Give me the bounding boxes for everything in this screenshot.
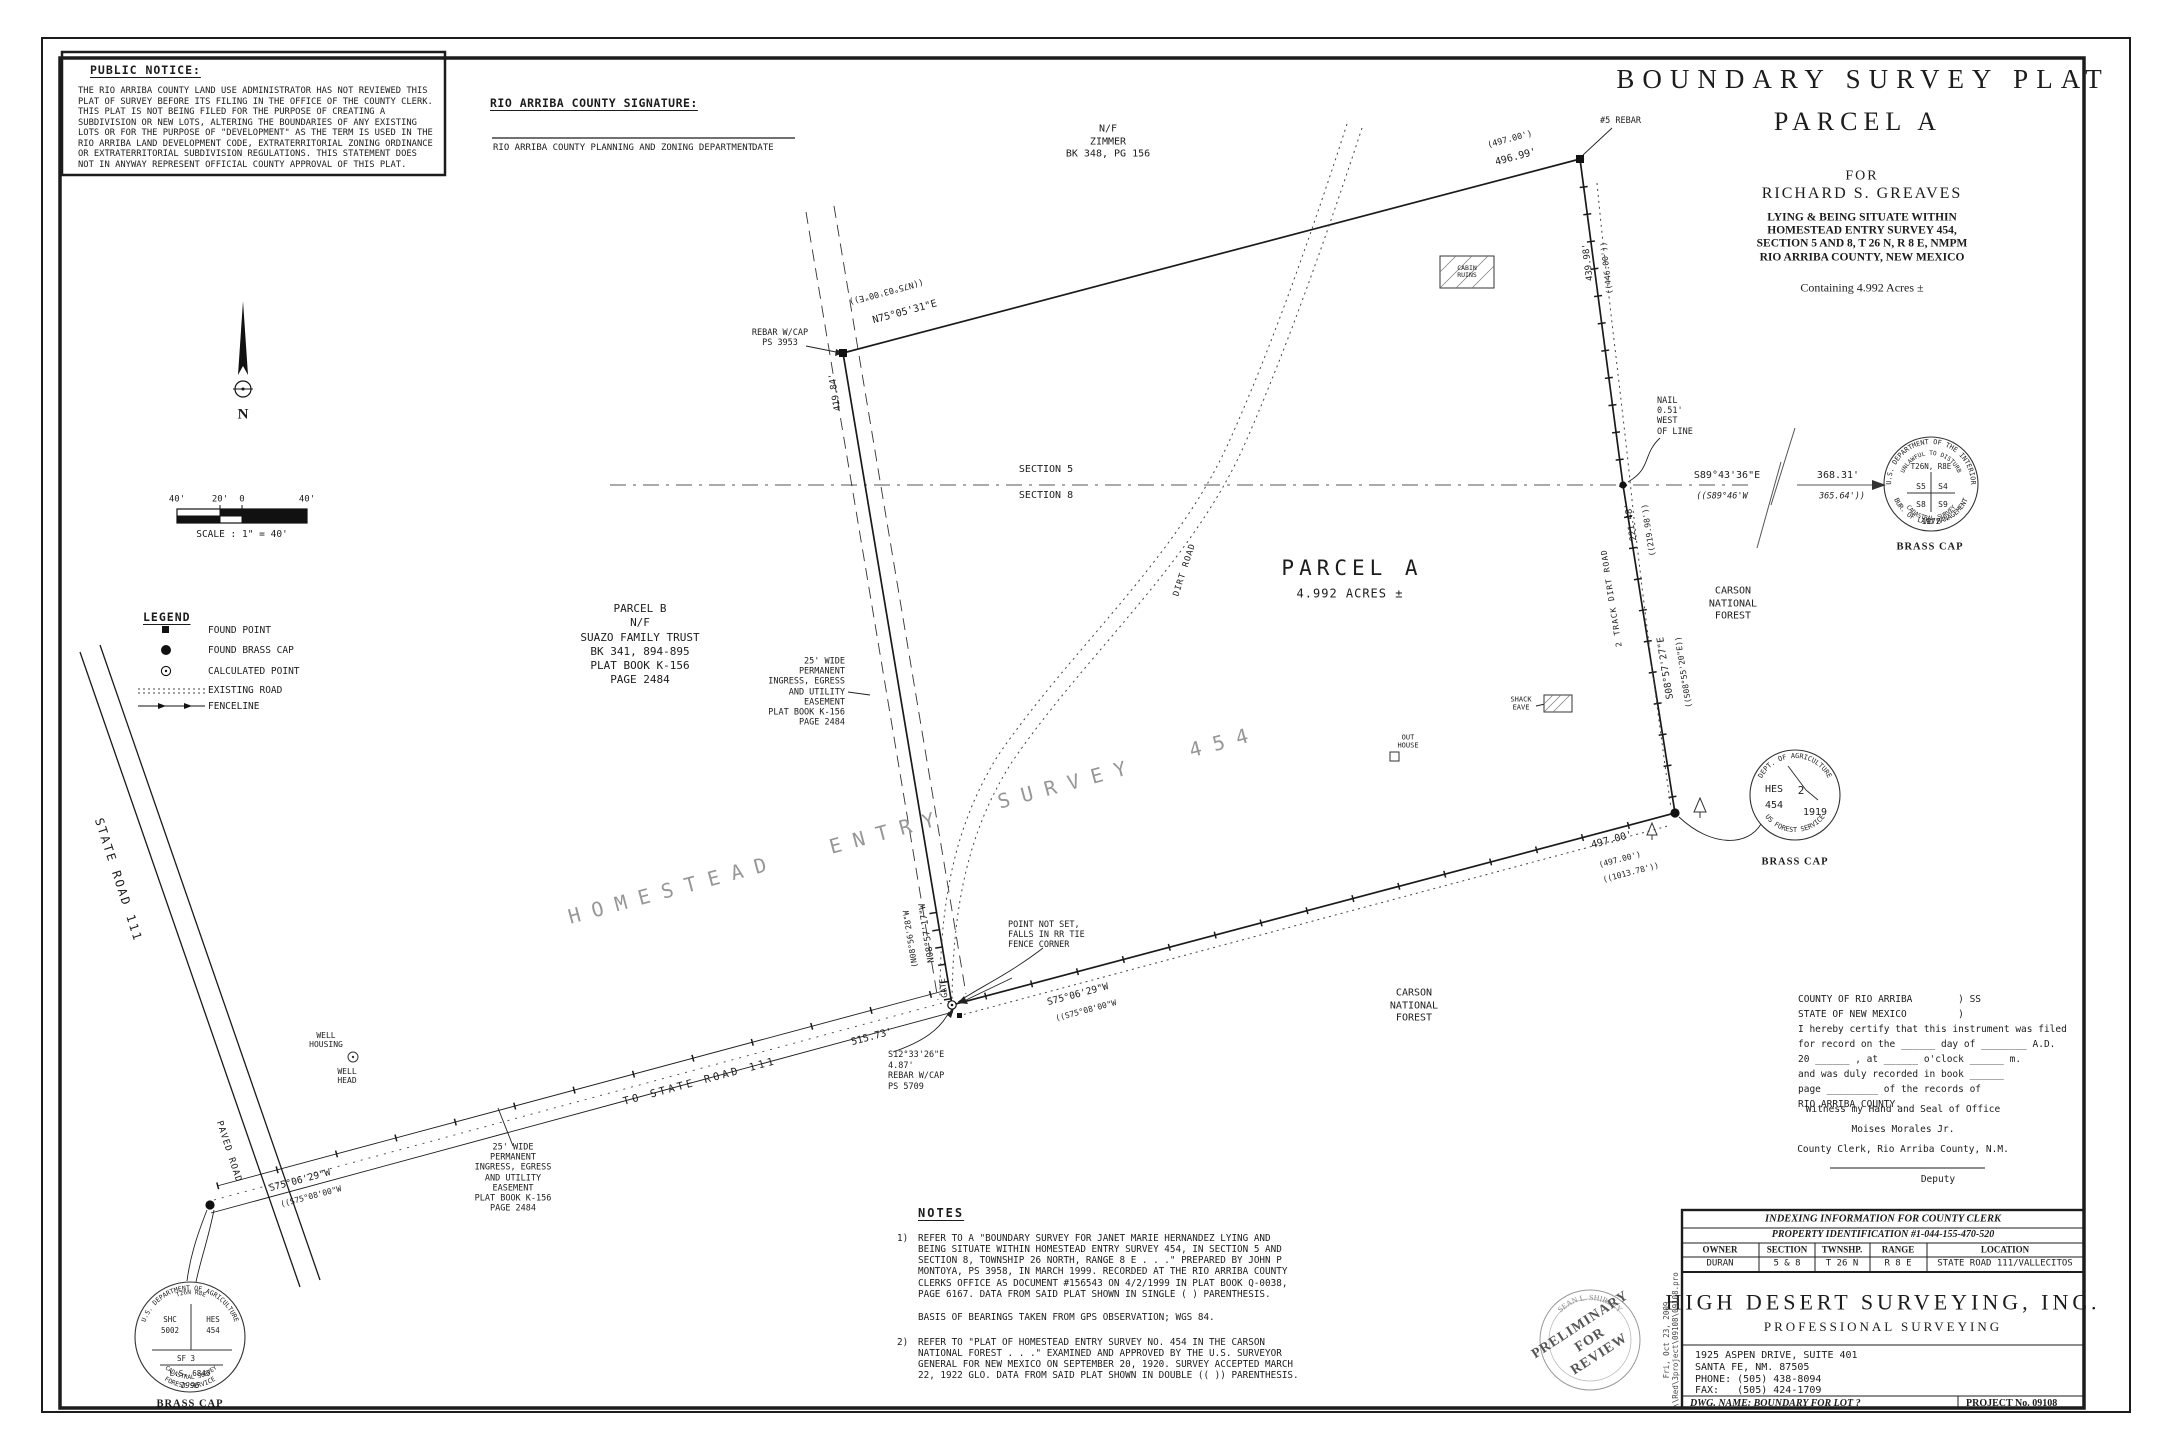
fs-sf: SF 3: [177, 1354, 195, 1363]
clerk-deputy-label: Deputy: [1921, 1174, 1955, 1186]
county-signature-department: RIO ARRIBA COUNTY PLANNING AND ZONING DE…: [493, 143, 753, 154]
legend-fenceline: FENCELINE: [208, 701, 259, 713]
brass-cap-label-hes: BRASS CAP: [1761, 855, 1828, 868]
county-signature-heading: RIO ARRIBA COUNTY SIGNATURE:: [490, 96, 698, 110]
indexing-property-id: PROPERTY IDENTIFICATION #1-044-155-470-5…: [1772, 1229, 1994, 1242]
scale-tick-40l: 40': [169, 494, 185, 505]
blm-brass-cap-seal: U.S. DEPARTMENT OF THE INTERIOR UNLAWFUL…: [1884, 437, 1978, 531]
note-1-text: REFER TO A "BOUNDARY SURVEY FOR JANET MA…: [918, 1233, 1300, 1300]
fs-q2a: HES: [206, 1315, 220, 1324]
indexing-header-location: LOCATION: [1981, 1244, 2029, 1255]
indexing-header-section: SECTION: [1767, 1244, 1808, 1255]
parcel-a-name: PARCEL A: [1281, 555, 1422, 581]
county-signature-date-label: DATE: [752, 143, 774, 154]
easement-note-mid: 25' WIDE PERMANENT INGRESS, EGRESS AND U…: [768, 656, 845, 727]
indexing-value-owner: DURAN: [1706, 1258, 1733, 1269]
parcel-b-label: PARCEL B N/F SUAZO FAMILY TRUST BK 341, …: [580, 602, 699, 688]
blm-q2: S4: [1938, 482, 1948, 491]
project-number: PROJECT No. 09108: [1966, 1398, 2057, 1411]
file-info-sidebar: Fri, Oct 23, 2009 \\Red\3project\09108\0…: [1662, 1272, 1680, 1407]
clerk-certification-text: COUNTY OF RIO ARRIBA ) SS STATE OF NEW M…: [1798, 992, 2067, 1112]
drawing-name: DWG. NAME: BOUNDARY FOR LOT ?: [1690, 1398, 1861, 1411]
easement-note-sw: 25' WIDE PERMANENT INGRESS, EGRESS AND U…: [475, 1142, 552, 1213]
brass-cap-label-blm: BRASS CAP: [1896, 540, 1963, 553]
scale-tick-0: 0: [239, 494, 244, 505]
outhouse-label: OUT HOUSE: [1397, 734, 1418, 749]
shack-eave-label: SHACK EAVE: [1510, 696, 1531, 711]
rebar-south-label: S12°33'26"E 4.87' REBAR W/CAP PS 5709: [888, 1050, 944, 1093]
plat-for-label: FOR: [1845, 167, 1878, 185]
bearing-section-line: S89°43'36"E: [1694, 470, 1760, 483]
blm-q1: S5: [1916, 482, 1926, 491]
scale-bar: [177, 505, 307, 523]
legend-heading: LEGEND: [143, 610, 191, 624]
hes-number: 454: [1765, 800, 1783, 811]
well-head-label: WELL HEAD: [337, 1067, 356, 1085]
brass-cap-label-fs: BRASS CAP: [156, 1397, 223, 1410]
indexing-header-owner: OWNER: [1702, 1244, 1737, 1255]
hes-brass-cap-seal: DEPT. OF AGRICULTURE HES 454 2 1919 US F…: [1750, 750, 1840, 840]
fs-q1b: 5002: [161, 1326, 179, 1335]
rebar-ne-label: #5 REBAR: [1600, 116, 1641, 127]
fs-q1a: SHC: [163, 1315, 177, 1324]
carson-forest-east: CARSON NATIONAL FOREST: [1709, 585, 1757, 623]
plat-acreage: Containing 4.992 Acres ±: [1800, 281, 1923, 296]
adjoiner-zimmer: N/F ZIMMER BK 348, PG 156: [1066, 123, 1150, 161]
note-2-number: 2): [897, 1337, 908, 1349]
indexing-value-section: 5 & 8: [1773, 1258, 1800, 1269]
fs-q2b: 454: [206, 1326, 220, 1335]
clerk-witness-text: Witness my Hand and Seal of Office Moise…: [1797, 1100, 2009, 1160]
section-line: [610, 428, 1872, 548]
plat-situs: LYING & BEING SITUATE WITHIN HOMESTEAD E…: [1757, 212, 1968, 265]
public-notice-heading: PUBLIC NOTICE:: [90, 63, 201, 77]
bearing-section-record: ((S89°46'W: [1696, 492, 1747, 503]
legend-found-brass: FOUND BRASS CAP: [208, 645, 294, 657]
scale-label: SCALE : 1" = 40': [196, 529, 288, 541]
blm-q3: S8: [1916, 500, 1926, 509]
north-label: N: [238, 406, 249, 425]
survey-plat-sheet: U.S. DEPARTMENT OF THE INTERIOR UNLAWFUL…: [0, 0, 2173, 1448]
indexing-header-twnshp: TWNSHP.: [1822, 1244, 1862, 1255]
plat-parcel-title: PARCEL A: [1774, 106, 1942, 139]
indexing-header-range: RANGE: [1882, 1244, 1915, 1255]
scale-tick-20: 20': [212, 494, 228, 505]
blm-q4: S9: [1938, 500, 1948, 509]
legend-calculated-point: CALCULATED POINT: [208, 666, 300, 678]
notes-heading: NOTES: [918, 1206, 964, 1221]
nail-label: NAIL 0.51' WEST OF LINE: [1657, 396, 1693, 437]
legend-symbols: [138, 626, 205, 709]
found-brass-cap-icon: [161, 645, 171, 655]
rebar-nw-label: REBAR W/CAP PS 3953: [752, 328, 808, 348]
indexing-title: INDEXING INFORMATION FOR COUNTY CLERK: [1765, 1212, 2001, 1225]
indexing-value-twnshp: T 26 N: [1826, 1258, 1859, 1269]
blm-township: T26N, R8E: [1911, 462, 1952, 471]
parcel-boundary: [843, 159, 1675, 1005]
indexing-value-range: R 8 E: [1884, 1258, 1911, 1269]
note-1-number: 1): [897, 1233, 908, 1245]
carson-forest-south: CARSON NATIONAL FOREST: [1390, 987, 1438, 1025]
easement-lines: [806, 206, 966, 1000]
cabin-ruins-label: CABIN RUINS: [1457, 265, 1477, 279]
firm-address: 1925 ASPEN DRIVE, SUITE 401 SANTA FE, NM…: [1695, 1350, 1858, 1397]
point-not-set-label: POINT NOT SET, FALLS IN RR TIE FENCE COR…: [1008, 920, 1085, 951]
note-2-text: REFER TO "PLAT OF HOMESTEAD ENTRY SURVEY…: [918, 1337, 1300, 1382]
scale-tick-40r: 40': [299, 494, 315, 505]
note-basis-of-bearings: BASIS OF BEARINGS TAKEN FROM GPS OBSERVA…: [918, 1312, 1215, 1324]
hes-label: HES: [1765, 784, 1783, 795]
firm-name: HIGH DESERT SURVEYING, INC.: [1665, 1288, 2100, 1316]
legend-found-point: FOUND POINT: [208, 625, 271, 637]
north-arrow-icon: [233, 301, 253, 397]
section-5-label: SECTION 5: [1019, 464, 1073, 477]
plat-client-name: RICHARD S. GREAVES: [1762, 184, 1963, 204]
plat-title: BOUNDARY SURVEY PLAT: [1616, 63, 2109, 97]
parcel-a-area: 4.992 ACRES ±: [1297, 587, 1404, 602]
public-notice-body: THE RIO ARRIBA COUNTY LAND USE ADMINISTR…: [78, 86, 434, 170]
distance-section-record: 365.64')): [1819, 492, 1865, 503]
section-8-label: SECTION 8: [1019, 490, 1073, 503]
legend-existing-road: EXISTING ROAD: [208, 685, 282, 697]
distance-section: 368.31': [1817, 470, 1859, 483]
found-point-icon: [162, 626, 169, 633]
well-housing-label: WELL HOUSING: [309, 1031, 343, 1049]
indexing-value-location: STATE ROAD 111/VALLECITOS: [1937, 1258, 2072, 1269]
fs-brass-cap-seal: U.S. DEPARTMENT OF AGRICULTURE T26N R8E …: [135, 1282, 245, 1392]
firm-tagline: PROFESSIONAL SURVEYING: [1764, 1319, 2002, 1335]
